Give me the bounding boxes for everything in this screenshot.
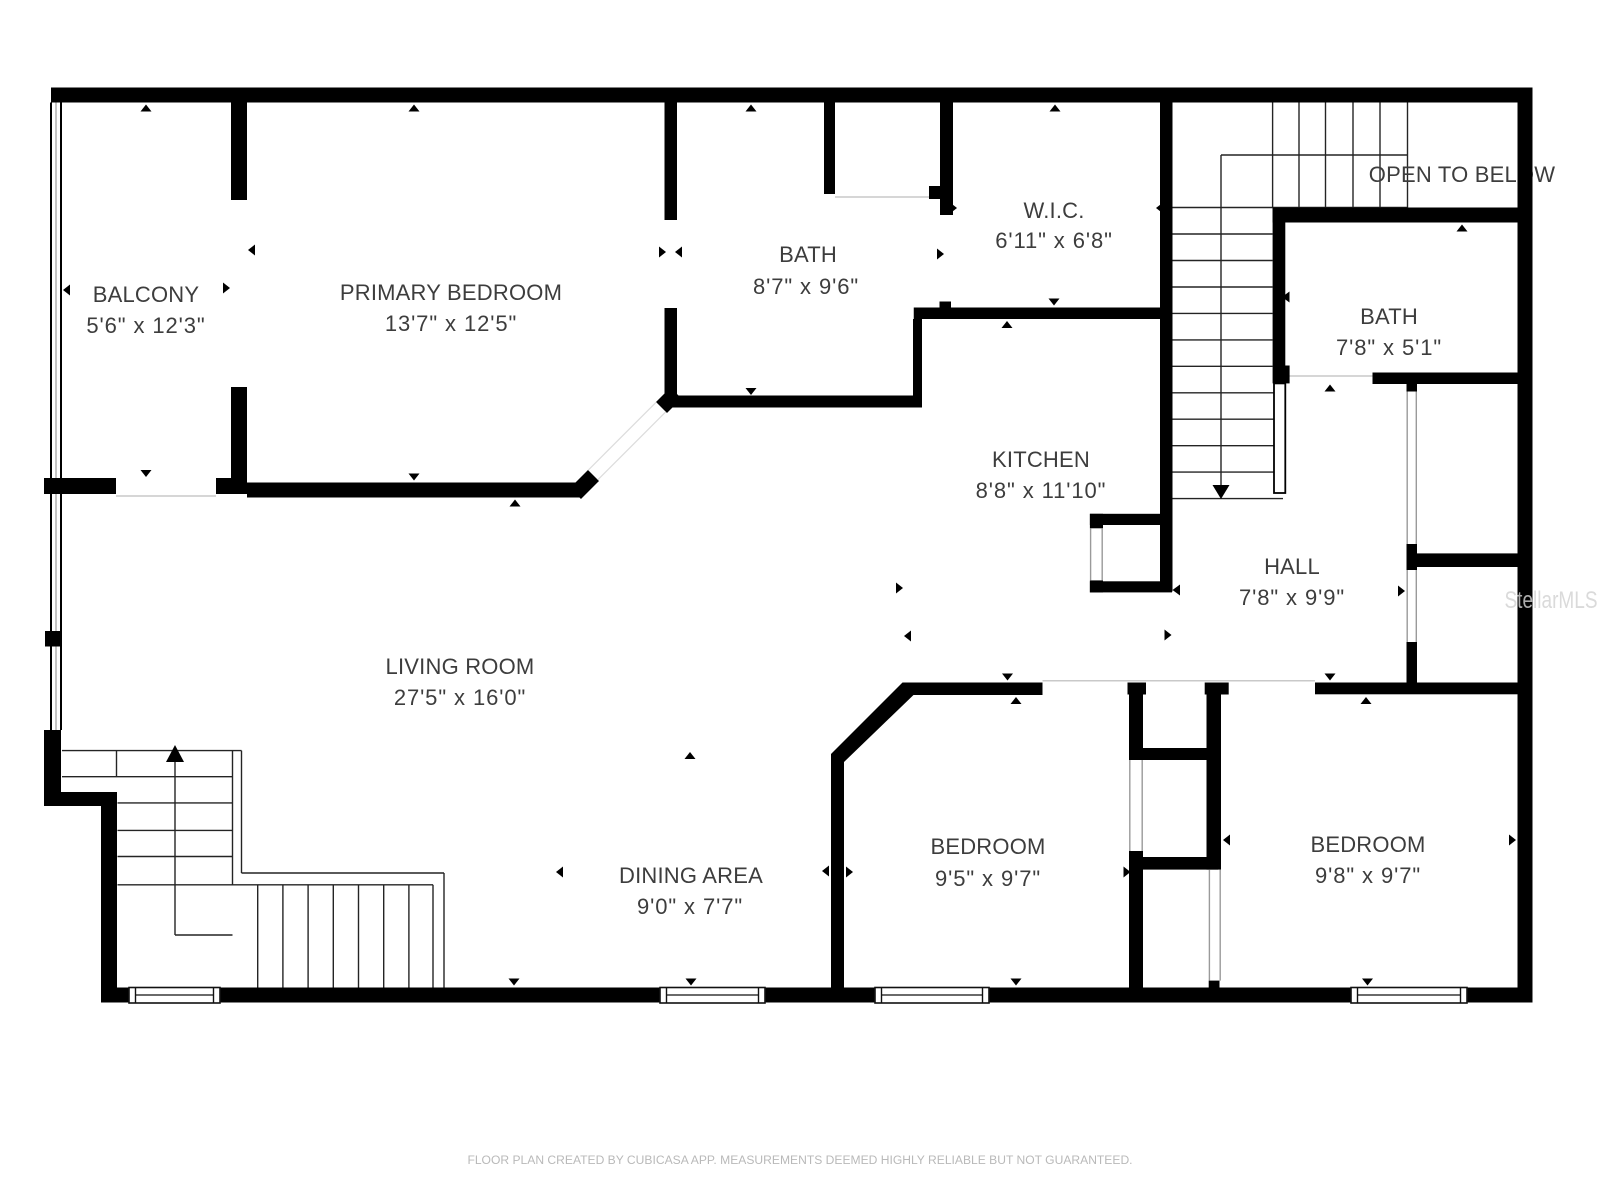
svg-text:27'5" x 16'0": 27'5" x 16'0": [394, 685, 526, 710]
svg-text:KITCHEN: KITCHEN: [992, 447, 1090, 472]
svg-text:StellarMLS: StellarMLS: [1505, 587, 1598, 614]
svg-text:FLOOR PLAN CREATED BY CUBICASA: FLOOR PLAN CREATED BY CUBICASA APP. MEAS…: [467, 1153, 1132, 1167]
svg-text:6'11" x 6'8": 6'11" x 6'8": [995, 228, 1113, 253]
svg-text:7'8" x 5'1": 7'8" x 5'1": [1336, 335, 1442, 360]
svg-text:13'7" x 12'5": 13'7" x 12'5": [385, 311, 517, 336]
svg-text:BATH: BATH: [1360, 304, 1418, 329]
svg-text:9'8" x 9'7": 9'8" x 9'7": [1315, 863, 1421, 888]
svg-text:5'6" x 12'3": 5'6" x 12'3": [86, 313, 205, 338]
svg-text:PRIMARY BEDROOM: PRIMARY BEDROOM: [340, 280, 562, 305]
svg-text:8'7" x 9'6": 8'7" x 9'6": [753, 274, 859, 299]
svg-text:HALL: HALL: [1264, 554, 1320, 579]
svg-text:BEDROOM: BEDROOM: [930, 834, 1045, 859]
svg-text:LIVING ROOM: LIVING ROOM: [386, 654, 535, 679]
svg-text:9'5" x 9'7": 9'5" x 9'7": [935, 866, 1041, 891]
svg-text:BEDROOM: BEDROOM: [1310, 832, 1425, 857]
svg-text:W.I.C.: W.I.C.: [1023, 198, 1084, 223]
svg-text:9'0" x 7'7": 9'0" x 7'7": [637, 894, 743, 919]
svg-text:7'8" x 9'9": 7'8" x 9'9": [1239, 585, 1345, 610]
svg-text:8'8" x 11'10": 8'8" x 11'10": [976, 478, 1107, 503]
svg-text:BATH: BATH: [779, 242, 837, 267]
svg-text:BALCONY: BALCONY: [93, 282, 200, 307]
svg-text:DINING AREA: DINING AREA: [619, 863, 763, 888]
